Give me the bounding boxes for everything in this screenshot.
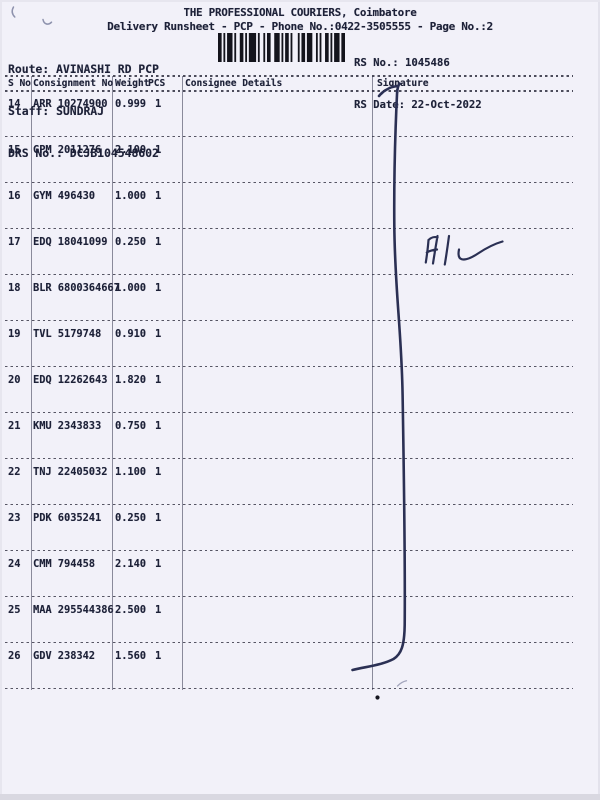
cell-sno: 21 (8, 420, 20, 432)
cell-sno: 25 (8, 604, 20, 616)
cell-weight: 1.000 (115, 282, 146, 294)
cell-weight: 0.250 (115, 236, 146, 248)
cell-sno: 14 (8, 98, 20, 110)
column-header-signature: Signature (377, 78, 428, 89)
cell-consignment: PDK 6035241 (33, 512, 101, 524)
cell-consignment: TVL 5179748 (33, 328, 101, 340)
cell-pcs: 1 (155, 604, 161, 616)
cell-pcs: 1 (155, 282, 161, 294)
cell-pcs: 1 (155, 98, 161, 110)
table-header: S NoConsignment NoWeightPCSConsignee Det… (0, 76, 600, 91)
table-row: 18BLR 68003646671.0001 (0, 275, 600, 321)
cell-pcs: 1 (155, 512, 161, 524)
cell-consignment: EDQ 18041099 (33, 236, 107, 248)
cell-consignment: ARR 10274900 (33, 98, 107, 110)
table-column-divider (31, 76, 32, 690)
table-row: 22TNJ 224050321.1001 (0, 459, 600, 505)
document-subtitle: Delivery Runsheet - PCP - Phone No.:0422… (0, 20, 600, 33)
column-header-consignment: Consignment No (33, 78, 113, 89)
cell-weight: 2.500 (115, 604, 146, 616)
cell-pcs: 1 (155, 144, 161, 156)
cell-weight: 0.250 (115, 512, 146, 524)
cell-weight: 2.140 (115, 558, 146, 570)
table-row: 23PDK 60352410.2501 (0, 505, 600, 551)
table-row: 21KMU 23438330.7501 (0, 413, 600, 459)
rs-no-value: 1045486 (405, 57, 450, 69)
cell-pcs: 1 (155, 190, 161, 202)
cell-sno: 19 (8, 328, 20, 340)
table-column-divider (372, 76, 373, 690)
cell-sno: 17 (8, 236, 20, 248)
document-title: THE PROFESSIONAL COURIERS, Coimbatore (0, 6, 600, 19)
cell-consignment: GYM 496430 (33, 190, 95, 202)
cell-pcs: 1 (155, 236, 161, 248)
cell-sno: 16 (8, 190, 20, 202)
cell-sno: 18 (8, 282, 20, 294)
cell-pcs: 1 (155, 466, 161, 478)
cell-pcs: 1 (155, 558, 161, 570)
cell-weight: 0.750 (115, 420, 146, 432)
cell-weight: 0.999 (115, 98, 146, 110)
cell-sno: 15 (8, 144, 20, 156)
cell-weight: 1.000 (115, 190, 146, 202)
cell-weight: 2.100 (115, 144, 146, 156)
rs-no-label: RS No.: (354, 57, 399, 69)
cell-consignment: KMU 2343833 (33, 420, 101, 432)
table-column-divider (182, 76, 183, 690)
cell-sno: 24 (8, 558, 20, 570)
cell-consignment: GPM 2011276 (33, 144, 101, 156)
cell-sno: 22 (8, 466, 20, 478)
ink-dot (375, 695, 379, 699)
cell-consignment: GDV 238342 (33, 650, 95, 662)
route-label: Route: (8, 62, 49, 76)
cell-weight: 1.820 (115, 374, 146, 386)
cell-pcs: 1 (155, 420, 161, 432)
column-header-consignee: Consignee Details (185, 78, 282, 89)
runsheet-page: THE PROFESSIONAL COURIERS, Coimbatore De… (0, 0, 600, 800)
cell-pcs: 1 (155, 374, 161, 386)
table-row: 26GDV 2383421.5601 (0, 643, 600, 689)
table-row: 17EDQ 180410990.2501 (0, 229, 600, 275)
cell-weight: 0.910 (115, 328, 146, 340)
table-row: 25MAA 2955443862.5001 (0, 597, 600, 643)
route-value: AVINASHI RD PCP (56, 62, 159, 76)
cell-sno: 20 (8, 374, 20, 386)
cell-sno: 23 (8, 512, 20, 524)
cell-weight: 1.560 (115, 650, 146, 662)
cell-sno: 26 (8, 650, 20, 662)
table-row: 20EDQ 122626431.8201 (0, 367, 600, 413)
column-header-sno: S No (8, 78, 31, 89)
barcode (218, 33, 345, 62)
route-line: Route: AVINASHI RD PCP (8, 62, 159, 76)
column-header-weight: Weight (115, 78, 149, 89)
column-header-pcs: PCS (148, 78, 165, 89)
cell-weight: 1.100 (115, 466, 146, 478)
table-row: 24CMM 7944582.1401 (0, 551, 600, 597)
table-row: 15GPM 20112762.1001 (0, 137, 600, 183)
table-row: 16GYM 4964301.0001 (0, 183, 600, 229)
table-row: 19TVL 51797480.9101 (0, 321, 600, 367)
cell-consignment: TNJ 22405032 (33, 466, 107, 478)
table-column-divider (112, 76, 113, 690)
cell-consignment: CMM 794458 (33, 558, 95, 570)
rs-no-line: RS No.: 1045486 (354, 56, 482, 70)
cell-pcs: 1 (155, 328, 161, 340)
cell-consignment: EDQ 12262643 (33, 374, 107, 386)
cell-consignment: MAA 295544386 (33, 604, 114, 616)
cell-pcs: 1 (155, 650, 161, 662)
cell-consignment: BLR 6800364667 (33, 282, 120, 294)
table-row: 14ARR 102749000.9991 (0, 91, 600, 137)
table-rows: 14ARR 102749000.999115GPM 20112762.10011… (0, 91, 600, 689)
